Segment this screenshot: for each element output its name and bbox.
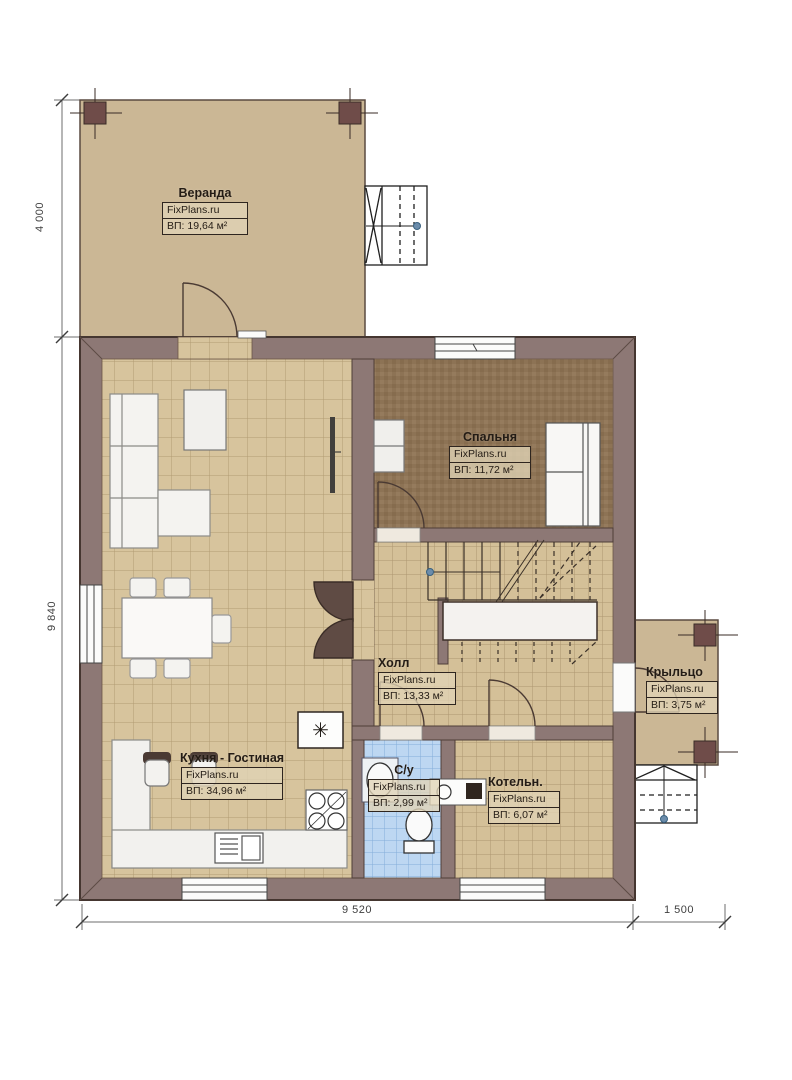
stair-void	[443, 602, 597, 640]
brand-row: FixPlans.ru	[379, 673, 455, 689]
room-title: Веранда	[178, 186, 231, 200]
room-info-box: FixPlans.ru ВП: 19,64 м²	[162, 202, 248, 235]
brand-row: FixPlans.ru	[163, 203, 247, 219]
floor-plan: Веранда FixPlans.ru ВП: 19,64 м² Спальня…	[0, 0, 792, 1080]
area-row: ВП: 11,72 м²	[450, 463, 530, 478]
room-title: Спальня	[463, 430, 517, 444]
room-title: Кухня - Гостиная	[180, 751, 284, 765]
dim-porch-width: 1 500	[639, 904, 719, 916]
room-info-box: FixPlans.ru ВП: 3,75 м²	[646, 681, 718, 714]
refrigerator-icon: ✳	[298, 712, 343, 748]
brand-row: FixPlans.ru	[647, 682, 717, 698]
porch-steps	[631, 765, 697, 823]
brand-row: FixPlans.ru	[489, 792, 559, 808]
room-info-box: FixPlans.ru ВП: 6,07 м²	[488, 791, 560, 824]
dim-veranda-depth: 4 000	[34, 187, 46, 247]
toilet-icon	[406, 809, 432, 841]
floor-plan-drawing	[0, 0, 792, 1080]
brand-row: FixPlans.ru	[182, 768, 282, 784]
room-info-box: FixPlans.ru ВП: 13,33 м²	[378, 672, 456, 705]
room-info-box: FixPlans.ru ВП: 34,96 м²	[181, 767, 283, 800]
dim-house-width: 9 520	[307, 904, 407, 916]
room-label-bedroom: Спальня FixPlans.ru ВП: 11,72 м²	[449, 430, 531, 479]
room-info-box: FixPlans.ru ВП: 2,99 м²	[368, 779, 440, 812]
room-title: Холл	[378, 656, 409, 670]
area-row: ВП: 6,07 м²	[489, 808, 559, 823]
room-label-bathroom: С/у FixPlans.ru ВП: 2,99 м²	[368, 763, 440, 812]
room-title: Крыльцо	[646, 665, 703, 679]
entry-door-opening	[613, 663, 635, 712]
room-label-veranda: Веранда FixPlans.ru ВП: 19,64 м²	[162, 186, 248, 235]
room-info-box: FixPlans.ru ВП: 11,72 м²	[449, 446, 531, 479]
dim-house-depth: 9 840	[46, 586, 58, 646]
room-title: Котельн.	[488, 775, 543, 789]
room-label-kitchen-living: Кухня - Гостиная FixPlans.ru ВП: 34,96 м…	[181, 751, 283, 800]
room-title: С/у	[394, 763, 413, 777]
room-label-hall: Холл FixPlans.ru ВП: 13,33 м²	[378, 656, 456, 705]
brand-row: FixPlans.ru	[450, 447, 530, 463]
brand-row: FixPlans.ru	[369, 780, 439, 796]
room-label-boiler: Котельн. FixPlans.ru ВП: 6,07 м²	[488, 775, 560, 824]
area-row: ВП: 19,64 м²	[163, 219, 247, 234]
area-row: ВП: 3,75 м²	[647, 698, 717, 713]
area-row: ВП: 13,33 м²	[379, 689, 455, 704]
room-label-porch: Крыльцо FixPlans.ru ВП: 3,75 м²	[646, 665, 718, 714]
area-row: ВП: 2,99 м²	[369, 796, 439, 811]
area-row: ВП: 34,96 м²	[182, 784, 282, 799]
veranda-steps	[365, 186, 427, 265]
